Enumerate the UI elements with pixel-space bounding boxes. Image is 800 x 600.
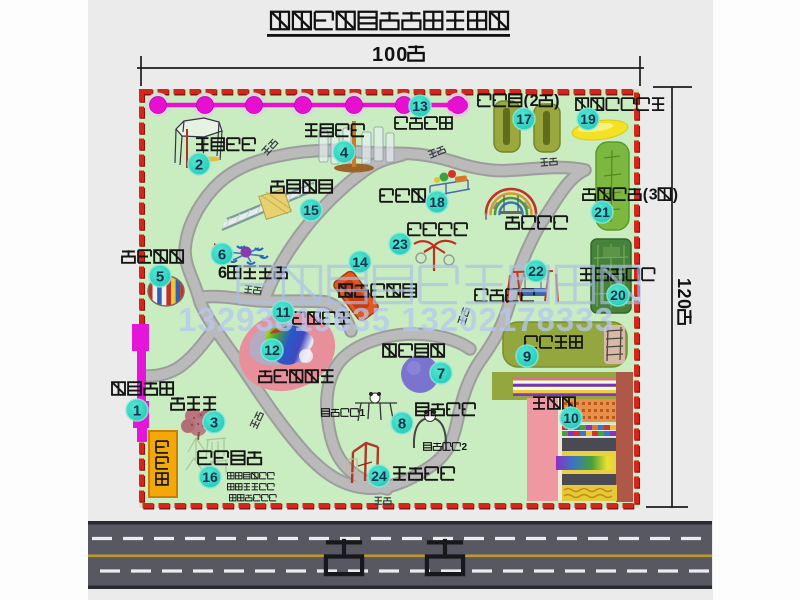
svg-text:22: 22 xyxy=(528,263,544,279)
svg-text:): ) xyxy=(673,187,678,204)
svg-text:16: 16 xyxy=(202,469,218,485)
svg-text:15: 15 xyxy=(303,202,319,218)
svg-text:19: 19 xyxy=(580,111,596,127)
svg-text:6: 6 xyxy=(218,246,226,263)
svg-text:120: 120 xyxy=(674,278,694,310)
svg-text:18: 18 xyxy=(429,194,445,210)
svg-text:1: 1 xyxy=(133,402,141,419)
svg-text:2: 2 xyxy=(195,156,203,173)
svg-text:20: 20 xyxy=(610,287,626,303)
svg-text:3: 3 xyxy=(210,414,218,431)
svg-text:10: 10 xyxy=(563,410,579,426)
svg-text:21: 21 xyxy=(594,204,610,220)
svg-text:4: 4 xyxy=(340,144,349,161)
svg-text:3: 3 xyxy=(649,187,658,204)
svg-text:9: 9 xyxy=(523,348,531,365)
svg-text:14: 14 xyxy=(352,254,368,270)
svg-text:1: 1 xyxy=(360,408,366,419)
svg-text:8: 8 xyxy=(398,415,406,432)
svg-text:12: 12 xyxy=(264,342,280,358)
svg-text:7: 7 xyxy=(437,365,445,382)
svg-text:13293819635 13202178333: 13293819635 13202178333 xyxy=(178,301,614,338)
svg-text:5: 5 xyxy=(156,268,164,285)
svg-text:2: 2 xyxy=(530,92,539,110)
svg-text:(: ( xyxy=(524,92,530,110)
svg-text:2: 2 xyxy=(462,442,468,453)
svg-text:100: 100 xyxy=(372,44,408,66)
svg-text:11: 11 xyxy=(276,304,291,320)
svg-text:24: 24 xyxy=(371,468,387,484)
svg-text:23: 23 xyxy=(392,236,408,252)
svg-text:6: 6 xyxy=(218,264,227,282)
svg-text:17: 17 xyxy=(516,111,532,127)
svg-text:): ) xyxy=(554,92,559,110)
svg-text:13: 13 xyxy=(412,98,428,114)
